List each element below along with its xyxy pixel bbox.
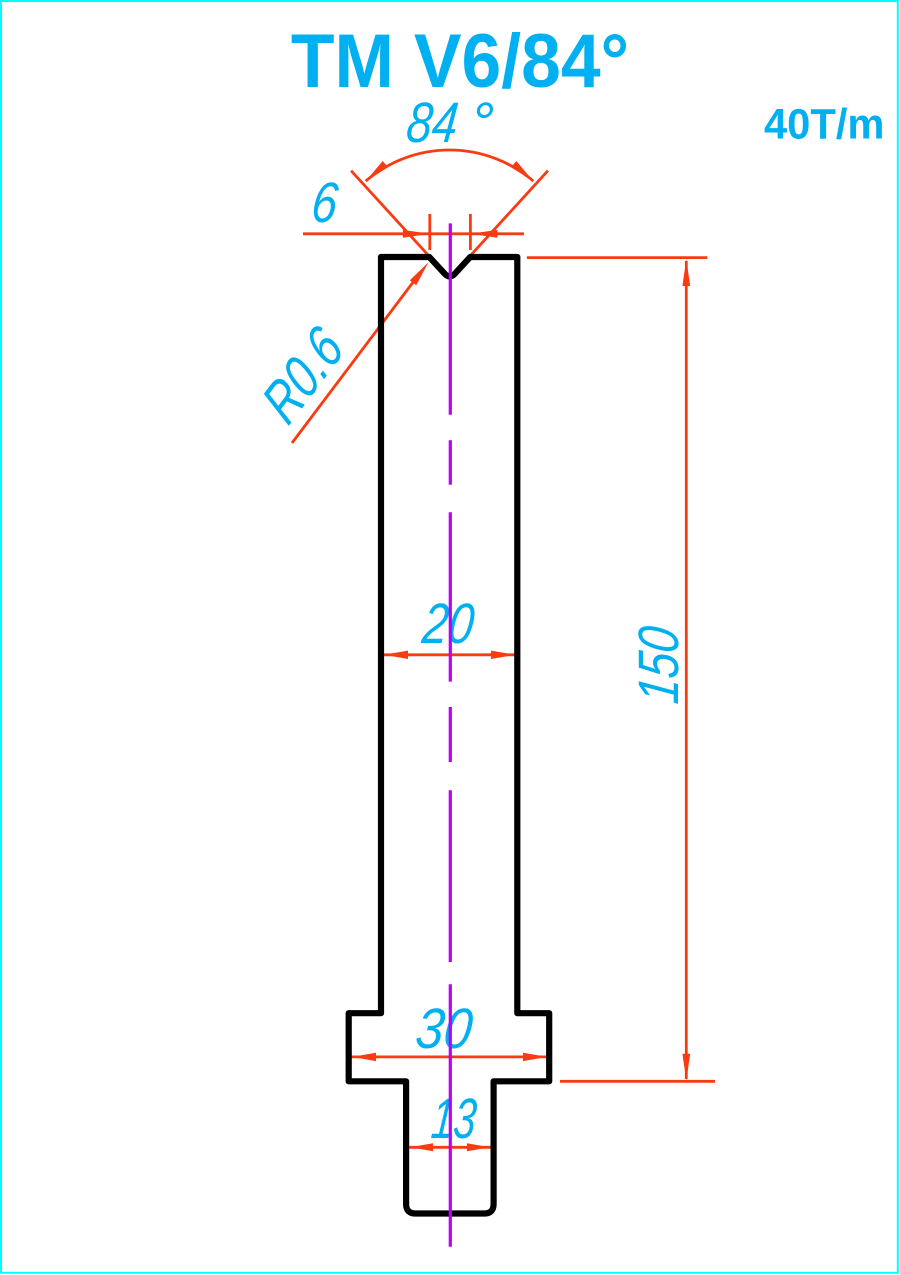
svg-text:20: 20 — [419, 591, 478, 655]
svg-text:13: 13 — [429, 1087, 480, 1151]
svg-text:150: 150 — [626, 623, 690, 706]
svg-text:30: 30 — [412, 997, 476, 1060]
svg-text:84: 84 — [404, 90, 462, 154]
svg-text:40T/m: 40T/m — [764, 100, 885, 148]
